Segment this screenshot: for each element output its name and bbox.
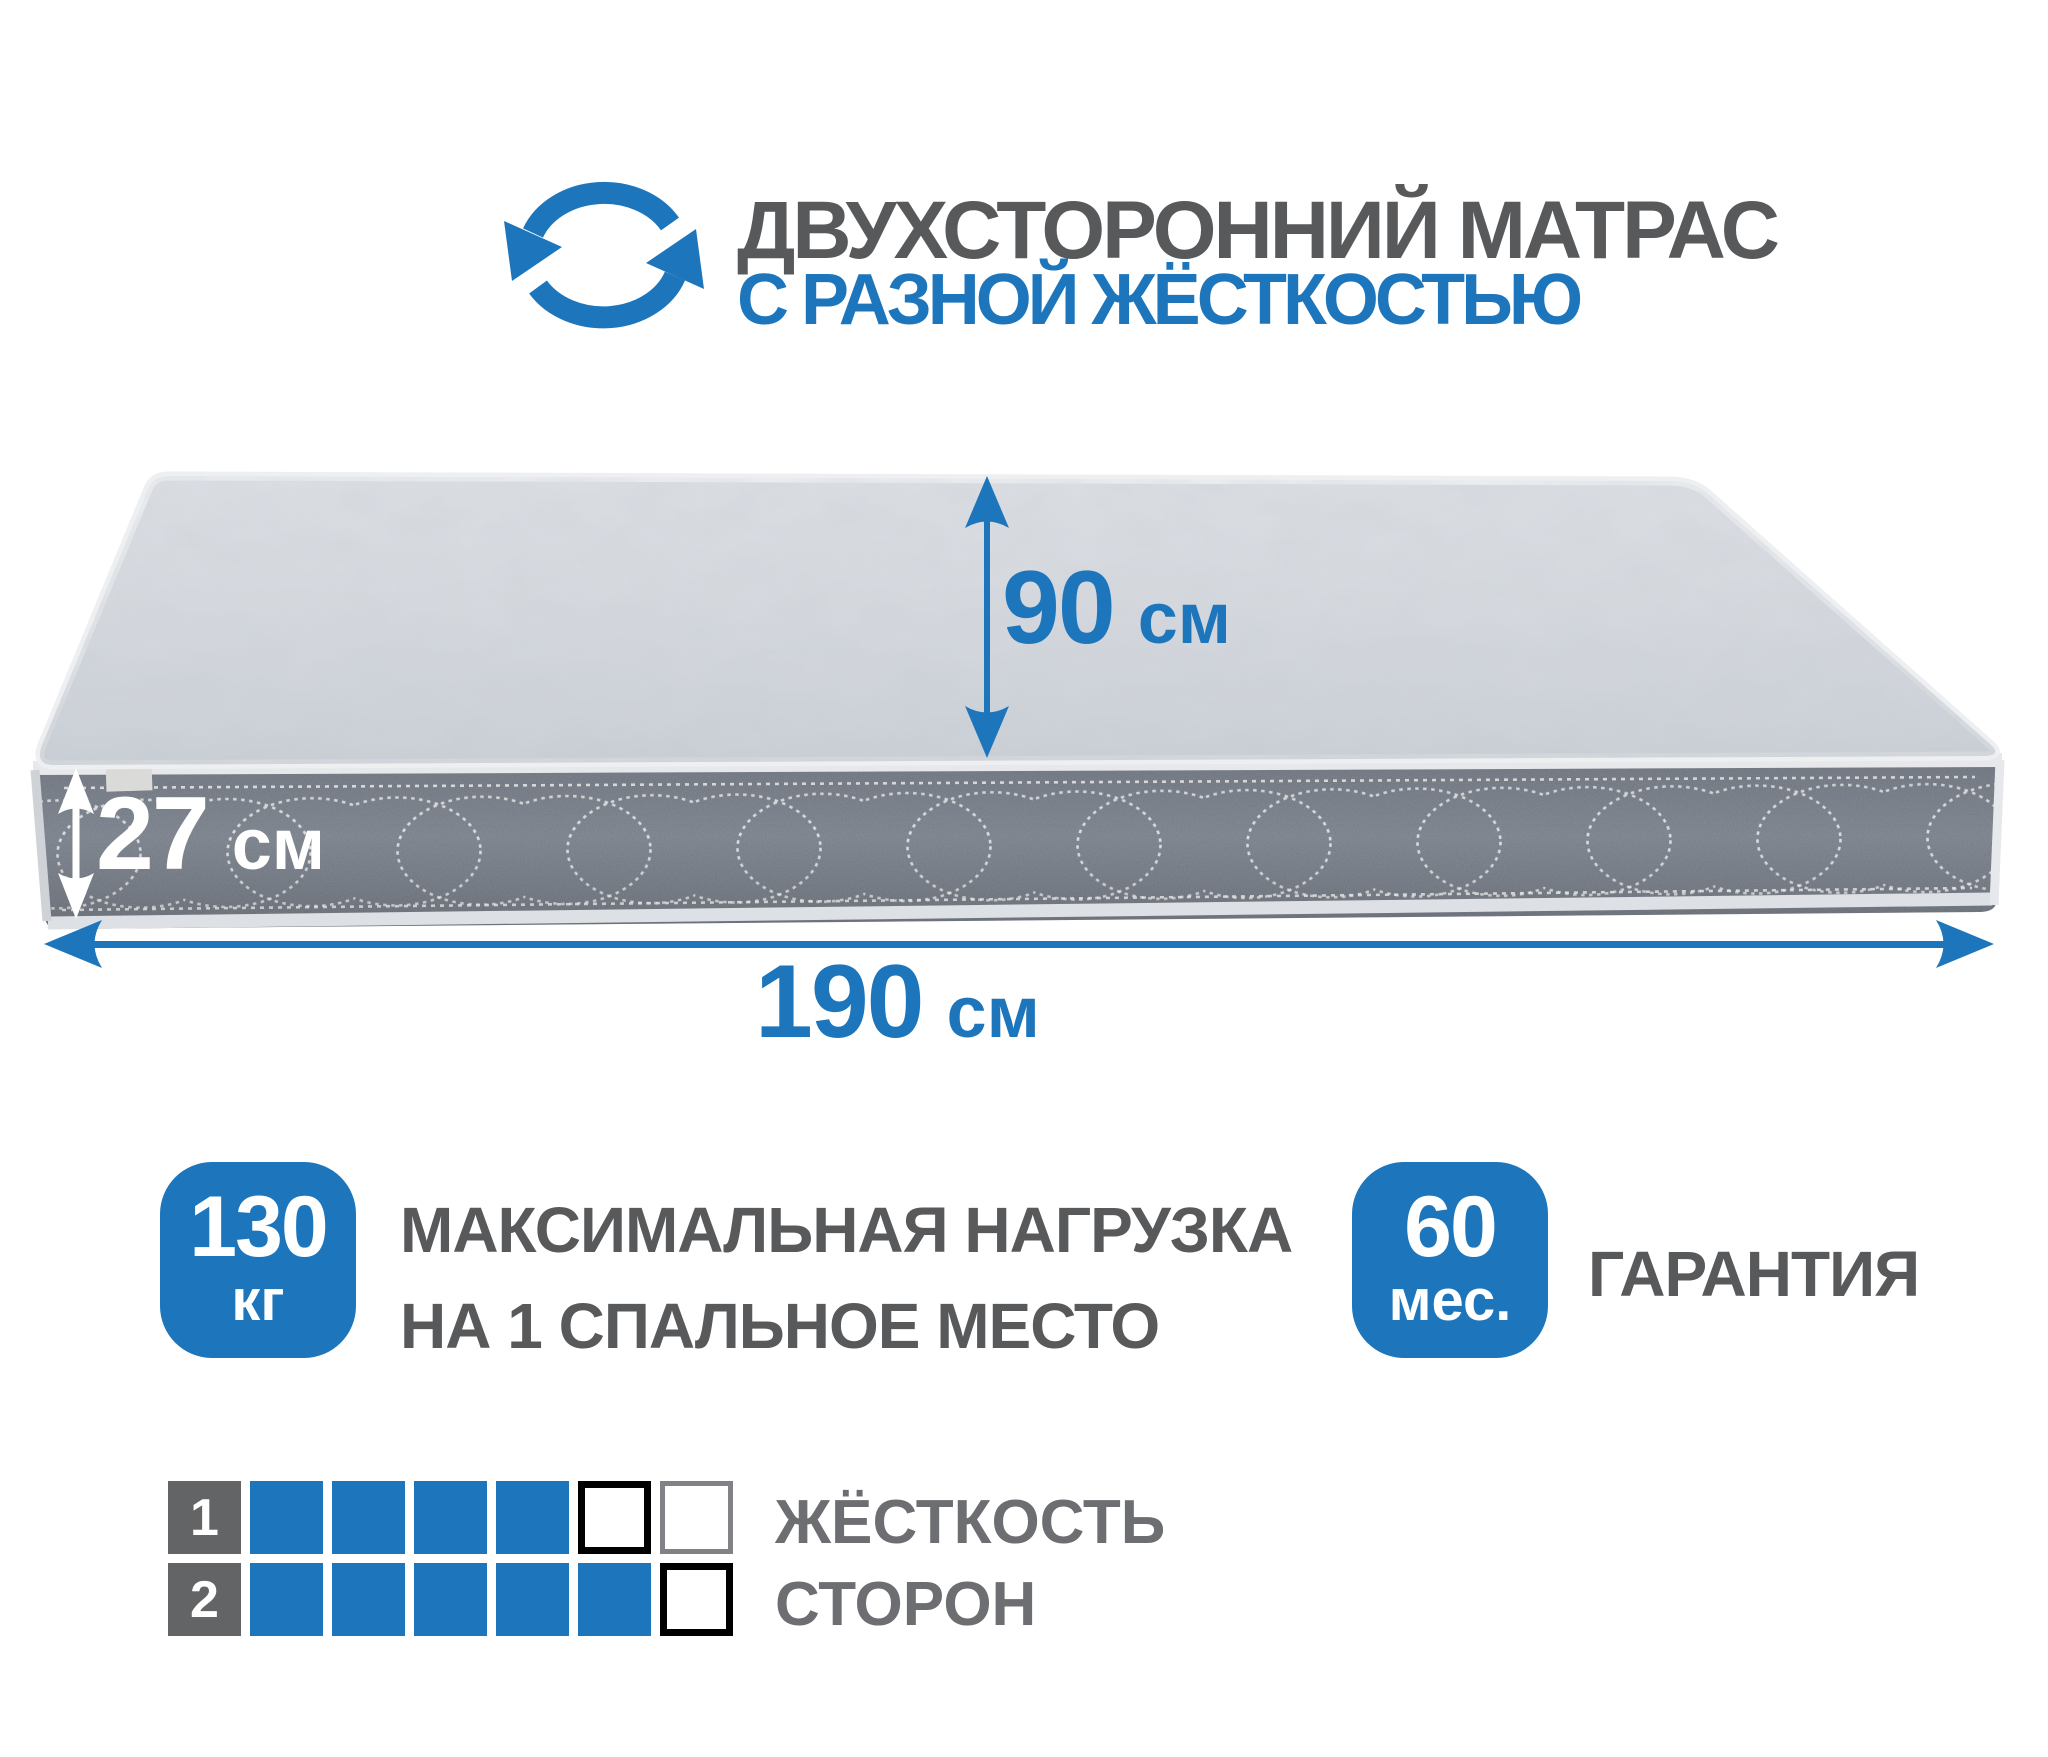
max-load-badge: 130 кг xyxy=(160,1162,356,1358)
warranty-badge: 60 мес. xyxy=(1352,1162,1548,1358)
width-dimension-label: 90 см xyxy=(1002,556,1231,660)
firmness-cell-filled xyxy=(496,1481,569,1554)
max-load-label-line1: МАКСИМАЛЬНАЯ НАГРУЗКА xyxy=(400,1182,1292,1278)
max-load-unit: кг xyxy=(231,1269,284,1333)
firmness-row-side-2: 2 xyxy=(168,1563,733,1636)
max-load-label-line2: НА 1 СПАЛЬНОЕ МЕСТО xyxy=(400,1278,1292,1374)
firmness-cell-filled xyxy=(250,1563,323,1636)
rotate-arrows-icon xyxy=(504,193,704,317)
firmness-cell-filled xyxy=(332,1563,405,1636)
mattress-side-band xyxy=(32,750,2002,937)
firmness-cell-empty-strong xyxy=(660,1563,733,1636)
firmness-cell-filled xyxy=(414,1563,487,1636)
side-number-cell: 1 xyxy=(168,1481,241,1554)
page-subtitle: С РАЗНОЙ ЖЁСТКОСТЬЮ xyxy=(737,264,1579,336)
height-value: 27 xyxy=(96,782,208,886)
firmness-label-line2: СТОРОН xyxy=(775,1574,1036,1636)
firmness-scale: 1 2 xyxy=(168,1481,733,1636)
length-unit: см xyxy=(947,977,1040,1049)
width-unit: см xyxy=(1138,583,1231,655)
firmness-cell-empty-strong xyxy=(578,1481,651,1554)
warranty-value: 60 xyxy=(1404,1187,1496,1269)
height-dimension-label: 27 см xyxy=(96,782,325,886)
width-value: 90 xyxy=(1002,556,1114,660)
firmness-row-side-1: 1 xyxy=(168,1481,733,1554)
firmness-cell-filled xyxy=(414,1481,487,1554)
side-number-cell: 2 xyxy=(168,1563,241,1636)
max-load-label: МАКСИМАЛЬНАЯ НАГРУЗКА НА 1 СПАЛЬНОЕ МЕСТ… xyxy=(400,1182,1292,1374)
warranty-unit: мес. xyxy=(1389,1269,1512,1333)
firmness-label-line1: ЖЁСТКОСТЬ xyxy=(775,1492,1165,1554)
firmness-cell-filled xyxy=(332,1481,405,1554)
length-dimension-label: 190 см xyxy=(755,950,1040,1054)
firmness-cell-empty-light xyxy=(660,1481,733,1554)
height-unit: см xyxy=(232,809,325,881)
warranty-label: ГАРАНТИЯ xyxy=(1588,1242,1919,1306)
firmness-cell-filled xyxy=(496,1563,569,1636)
firmness-cell-filled xyxy=(250,1481,323,1554)
firmness-cell-filled xyxy=(578,1563,651,1636)
max-load-value: 130 xyxy=(189,1187,327,1269)
mattress-infographic: ДВУХСТОРОННИЙ МАТРАС С РАЗНОЙ ЖЁСТКОСТЬЮ… xyxy=(0,0,2048,1757)
length-value: 190 xyxy=(755,950,923,1054)
